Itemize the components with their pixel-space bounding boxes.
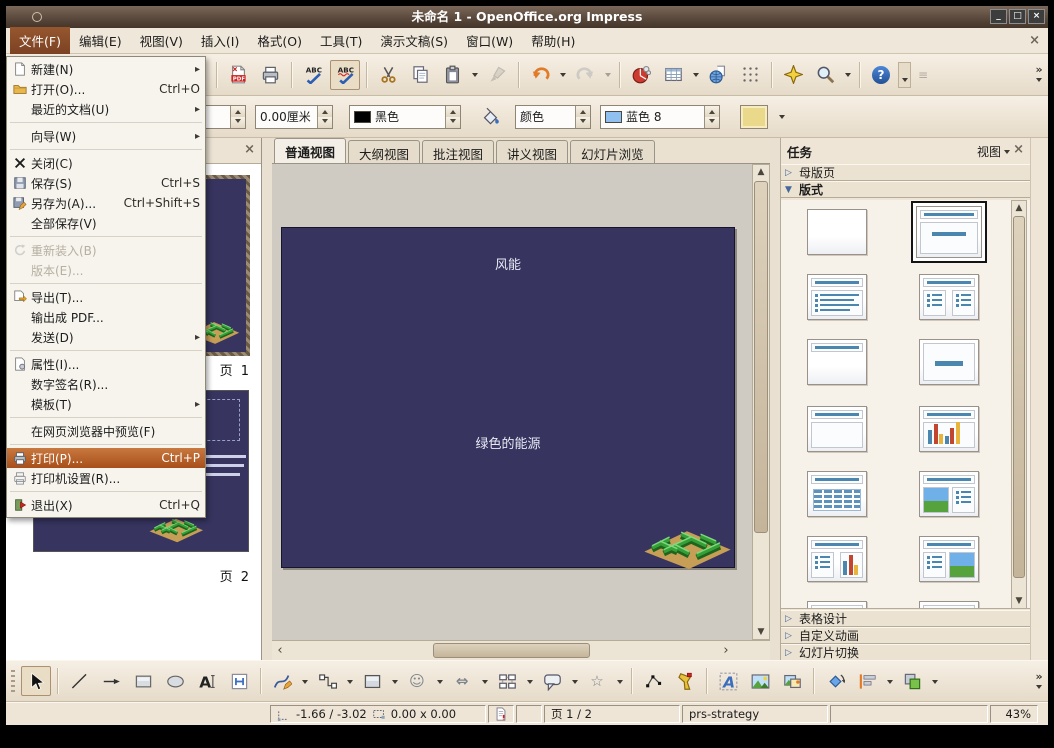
vertical-text-icon xyxy=(230,672,249,691)
help-icon: ? xyxy=(872,66,890,84)
app-window: 未命名 1 - OpenOffice.org Impress _ □ × 文件(… xyxy=(6,6,1048,725)
layout-title-text-chart[interactable] xyxy=(807,536,867,582)
smiley-icon: ☺ xyxy=(409,674,425,689)
menu-item-exit[interactable]: 退出(X)Ctrl+Q xyxy=(7,495,205,515)
menu-window[interactable]: 窗口(W) xyxy=(457,27,522,54)
section-custom-animation[interactable]: ▷ 自定义动画 xyxy=(781,627,1030,644)
print-button[interactable] xyxy=(255,60,285,90)
menu-item-printer-settings[interactable]: 打印机设置(R)... xyxy=(7,468,205,488)
status-template[interactable]: prs-strategy xyxy=(682,705,828,723)
star-icon: ☆ xyxy=(590,674,603,689)
toolbar2-options[interactable] xyxy=(776,103,787,131)
vertical-text-tool[interactable] xyxy=(224,666,254,696)
callout-icon xyxy=(543,672,562,691)
gallery-button[interactable] xyxy=(777,666,807,696)
insert-chart-button[interactable] xyxy=(626,60,656,90)
pdf-icon xyxy=(229,65,248,84)
layout-scrollbar[interactable]: ▲ ▼ xyxy=(1011,200,1027,609)
symbol-shapes-dropdown[interactable] xyxy=(434,667,445,695)
task-panel-close-icon[interactable]: × xyxy=(1013,143,1024,157)
document-modified-icon xyxy=(494,707,508,721)
layout-title-picture-text[interactable] xyxy=(919,471,979,517)
layout-title-chart[interactable] xyxy=(919,406,979,452)
arrow-line-icon xyxy=(102,672,121,691)
menu-item-open[interactable]: 打开(O)...Ctrl+O xyxy=(7,79,205,99)
drawbar-overflow-button[interactable]: » xyxy=(1030,666,1048,696)
maximize-button[interactable]: □ xyxy=(1009,9,1026,24)
format-paintbrush-button[interactable] xyxy=(482,60,512,90)
layout-title-content[interactable] xyxy=(807,274,867,320)
select-tool[interactable] xyxy=(21,666,51,696)
arrange-button[interactable] xyxy=(897,666,927,696)
line-width-field[interactable]: 0.00厘米 xyxy=(255,105,333,129)
fontwork-button[interactable] xyxy=(713,666,743,696)
line-width-spinner[interactable] xyxy=(317,106,332,128)
section-table-design[interactable]: ▷ 表格设计 xyxy=(781,610,1030,627)
callouts-dropdown[interactable] xyxy=(569,667,580,695)
menu-view[interactable]: 视图(V) xyxy=(131,27,192,54)
picture-icon xyxy=(751,672,770,691)
scroll-right-icon[interactable]: › xyxy=(718,643,734,658)
menu-insert[interactable]: 插入(I) xyxy=(192,27,248,54)
tab-handout-view[interactable]: 讲义视图 xyxy=(496,140,568,163)
layout-title-two-content[interactable] xyxy=(919,274,979,320)
horizontal-scrollbar[interactable]: ‹ › xyxy=(272,640,752,660)
undo-dropdown[interactable] xyxy=(557,61,568,89)
fill-style-spinner[interactable] xyxy=(575,106,590,128)
expanded-icon: ▼ xyxy=(785,185,795,195)
edit-points-button[interactable] xyxy=(638,666,668,696)
cut-button[interactable] xyxy=(373,60,403,90)
menu-slideshow[interactable]: 演示文稿(S) xyxy=(371,27,457,54)
fill-color-swatch xyxy=(605,111,622,123)
save-icon xyxy=(13,176,27,190)
grid-icon xyxy=(741,65,760,84)
curve-icon xyxy=(273,672,292,691)
curve-tool[interactable] xyxy=(267,666,297,696)
symbol-shapes-tool[interactable]: ☺ xyxy=(402,666,432,696)
exit-icon xyxy=(13,498,27,512)
panel-splitter-right[interactable] xyxy=(770,138,780,660)
basic-shapes-tool[interactable] xyxy=(357,666,387,696)
export-pdf-button[interactable] xyxy=(223,60,253,90)
redo-button[interactable] xyxy=(570,60,600,90)
fill-style-combo[interactable]: 颜色 xyxy=(515,105,591,129)
redo-icon xyxy=(576,65,595,84)
statusbar: -1.66 / -3.02 0.00 x 0.00 页 1 / 2 prs-st… xyxy=(6,702,1048,725)
menu-item-templates[interactable]: 模板(T)▸ xyxy=(7,394,205,414)
line-color-spinner[interactable] xyxy=(445,106,460,128)
menu-item-versions: 版本(E)... xyxy=(7,260,205,280)
hyperlink-icon xyxy=(709,65,728,84)
reload-icon xyxy=(13,243,27,257)
status-page: 页 1 / 2 xyxy=(544,705,680,723)
menu-item-new[interactable]: 新建(N)▸ xyxy=(7,59,205,79)
stars-tool[interactable]: ☆ xyxy=(582,666,612,696)
line-style-spinner[interactable] xyxy=(230,106,245,128)
block-arrow-icon: ⇔ xyxy=(456,674,469,689)
paste-dropdown[interactable] xyxy=(469,61,480,89)
help-button[interactable]: ? xyxy=(866,60,896,90)
view-tabs: 普通视图 大纲视图 批注视图 讲义视图 幻灯片浏览 xyxy=(272,138,770,164)
close-button[interactable]: × xyxy=(1028,9,1045,24)
vertical-scroll-thumb[interactable] xyxy=(754,181,768,533)
menu-item-close[interactable]: 关闭(C) xyxy=(7,153,205,173)
menu-item-digital-signatures[interactable]: 数字签名(R)... xyxy=(7,374,205,394)
block-arrows-tool[interactable]: ⇔ xyxy=(447,666,477,696)
scroll-down-icon[interactable]: ▼ xyxy=(1011,596,1027,606)
tab-slide-sorter[interactable]: 幻灯片浏览 xyxy=(570,140,655,163)
maze-graphic[interactable] xyxy=(638,507,736,569)
document-close-icon[interactable]: × xyxy=(1029,33,1040,48)
printer-icon xyxy=(261,65,280,84)
paintbrush-icon xyxy=(488,65,507,84)
rectangle-icon xyxy=(134,672,153,691)
autospellcheck-icon xyxy=(336,65,355,84)
spellcheck-icon xyxy=(304,65,323,84)
menu-file[interactable]: 文件(F) xyxy=(10,27,70,54)
section-layouts[interactable]: ▼ 版式 xyxy=(781,181,1030,198)
properties-icon xyxy=(13,357,27,371)
layout-scroll-thumb[interactable] xyxy=(1013,216,1025,578)
ellipse-tool[interactable] xyxy=(160,666,190,696)
rotate-icon xyxy=(826,672,845,691)
print-icon xyxy=(13,451,27,465)
menu-item-web-preview[interactable]: 在网页浏览器中预览(F) xyxy=(7,421,205,441)
flowchart-icon xyxy=(498,672,517,691)
slide-1-label: 页 1 xyxy=(220,360,251,379)
line-color-combo[interactable]: 黑色 xyxy=(349,105,461,129)
paste-button[interactable] xyxy=(437,60,467,90)
copy-button[interactable] xyxy=(405,60,435,90)
menu-item-properties[interactable]: 属性(I)... xyxy=(7,354,205,374)
zoom-button[interactable] xyxy=(810,60,840,90)
alignment-dropdown[interactable] xyxy=(884,667,895,695)
align-icon xyxy=(858,672,877,691)
status-empty xyxy=(830,705,988,723)
task-panel: 任务 视图 × ▷ 母版页 ▼ 版式 xyxy=(780,138,1030,660)
navigator-button[interactable] xyxy=(778,60,808,90)
basic-shapes-dropdown[interactable] xyxy=(389,667,400,695)
status-signature xyxy=(516,705,542,723)
collapsed-icon: ▷ xyxy=(785,614,795,624)
line-color-swatch xyxy=(354,111,371,123)
layout-centered-text[interactable] xyxy=(919,339,979,385)
save-as-icon xyxy=(13,196,27,210)
scroll-up-icon[interactable]: ▲ xyxy=(1011,203,1027,213)
undo-button[interactable] xyxy=(525,60,555,90)
undo-icon xyxy=(531,65,550,84)
slide-1[interactable]: 风能 绿色的能源 xyxy=(281,227,735,568)
text-icon xyxy=(198,672,217,691)
menu-item-wizards[interactable]: 向导(W)▸ xyxy=(7,126,205,146)
layout-clipped-1[interactable] xyxy=(807,601,867,609)
cursor-position: -1.66 / -3.02 xyxy=(296,707,367,721)
arrange-dropdown[interactable] xyxy=(929,667,940,695)
status-modified[interactable] xyxy=(488,705,514,723)
line-arrow-tool[interactable] xyxy=(96,666,126,696)
size-icon xyxy=(372,707,386,721)
layout-title-text-picture[interactable] xyxy=(919,536,979,582)
scrollbar-corner xyxy=(752,640,770,660)
insert-picture-button[interactable] xyxy=(745,666,775,696)
cursor-icon xyxy=(27,672,46,691)
file-menu: 新建(N)▸ 打开(O)...Ctrl+O 最近的文档(U)▸ 向导(W)▸ 关… xyxy=(6,56,206,518)
fill-color-combo[interactable]: 蓝色 8 xyxy=(600,105,720,129)
minimize-button[interactable]: _ xyxy=(990,9,1007,24)
new-document-icon xyxy=(13,62,27,76)
autospellcheck-button[interactable] xyxy=(330,60,360,90)
flowchart-tool[interactable] xyxy=(492,666,522,696)
tab-notes-view[interactable]: 批注视图 xyxy=(422,140,494,163)
menu-item-save[interactable]: 保存(S)Ctrl+S xyxy=(7,173,205,193)
vertical-scrollbar[interactable]: ▲ ▼ xyxy=(752,164,770,640)
ellipse-icon xyxy=(166,672,185,691)
glue-points-icon xyxy=(676,672,695,691)
menu-help[interactable]: 帮助(H) xyxy=(522,27,584,54)
slide-title-text[interactable]: 风能 xyxy=(282,254,734,273)
task-panel-title: 任务 xyxy=(787,142,812,161)
insert-table-button[interactable] xyxy=(658,60,688,90)
gallery-icon xyxy=(783,672,802,691)
layout-title-table[interactable] xyxy=(807,471,867,517)
menu-tools[interactable]: 工具(T) xyxy=(311,27,371,54)
zoom-dropdown[interactable] xyxy=(842,61,853,89)
scroll-left-icon[interactable]: ‹ xyxy=(272,643,288,658)
menu-item-export-pdf[interactable]: 输出成 PDF... xyxy=(7,307,205,327)
scissors-icon xyxy=(379,65,398,84)
menu-item-recent-documents[interactable]: 最近的文档(U)▸ xyxy=(7,99,205,119)
fontwork-icon xyxy=(719,672,738,691)
paste-icon xyxy=(443,65,462,84)
layout-clipped-2[interactable] xyxy=(919,601,979,609)
magnifier-icon xyxy=(816,65,835,84)
chart-icon xyxy=(632,65,651,84)
callouts-tool[interactable] xyxy=(537,666,567,696)
open-folder-icon xyxy=(13,82,27,96)
rectangle-tool[interactable] xyxy=(128,666,158,696)
display-grid-button[interactable] xyxy=(735,60,765,90)
rotate-button[interactable] xyxy=(820,666,850,696)
titlebar[interactable]: 未命名 1 - OpenOffice.org Impress _ □ × xyxy=(6,6,1048,28)
navigator-star-icon xyxy=(784,65,803,84)
collapsed-icon: ▷ xyxy=(785,168,795,178)
right-edge-strip xyxy=(1030,138,1048,660)
horizontal-scroll-thumb[interactable] xyxy=(433,643,590,658)
scroll-up-icon[interactable]: ▲ xyxy=(753,167,769,177)
line-tool[interactable] xyxy=(64,666,94,696)
slide-subtitle-text[interactable]: 绿色的能源 xyxy=(282,433,734,452)
export-icon xyxy=(13,290,27,304)
section-slide-transition[interactable]: ▷ 幻灯片切换 xyxy=(781,644,1030,661)
slide-canvas[interactable]: 风能 绿色的能源 xyxy=(272,164,752,640)
layout-title-subtitle-selected[interactable] xyxy=(911,201,987,263)
shadow-button[interactable] xyxy=(740,105,768,129)
menu-item-save-all[interactable]: 全部保存(V) xyxy=(7,213,205,233)
connector-tool[interactable] xyxy=(312,666,342,696)
task-panel-header: 任务 视图 × xyxy=(781,138,1030,164)
drawing-toolbar: ☺ ⇔ ☆ » xyxy=(6,660,1048,702)
layout-gallery xyxy=(781,200,1030,609)
menu-edit[interactable]: 编辑(E) xyxy=(70,27,131,54)
stars-dropdown[interactable] xyxy=(614,667,625,695)
status-zoom[interactable]: 43% xyxy=(990,705,1038,723)
position-icon xyxy=(277,707,291,721)
menu-item-send[interactable]: 发送(D)▸ xyxy=(7,327,205,347)
table-dropdown[interactable] xyxy=(690,61,701,89)
fill-color-spinner[interactable] xyxy=(704,106,719,128)
area-style-button[interactable] xyxy=(475,102,505,132)
connector-dropdown[interactable] xyxy=(344,667,355,695)
collapsed-icon: ▷ xyxy=(785,631,795,641)
menubar: 文件(F) 编辑(E) 视图(V) 插入(I) 格式(O) 工具(T) 演示文稿… xyxy=(6,28,1048,54)
copy-icon xyxy=(411,65,430,84)
basic-shape-icon xyxy=(363,672,382,691)
slide-panel-close-icon[interactable]: × xyxy=(244,143,255,157)
object-size: 0.00 x 0.00 xyxy=(391,707,456,721)
alignment-button[interactable] xyxy=(852,666,882,696)
flowchart-dropdown[interactable] xyxy=(524,667,535,695)
edit-points-icon xyxy=(644,672,663,691)
text-tool[interactable] xyxy=(192,666,222,696)
status-position-size: -1.66 / -3.02 0.00 x 0.00 xyxy=(270,705,486,723)
scroll-down-icon[interactable]: ▼ xyxy=(753,627,769,637)
slide-2-label: 页 2 xyxy=(220,566,251,585)
hyperlink-button[interactable] xyxy=(703,60,733,90)
section-master-pages[interactable]: ▷ 母版页 xyxy=(781,164,1030,181)
toolbar-overflow-button[interactable]: » xyxy=(1030,60,1048,90)
toolbar-options[interactable] xyxy=(898,62,911,88)
layout-title-only[interactable] xyxy=(807,339,867,385)
printer-settings-icon xyxy=(13,471,27,485)
workspace: 普通视图 大纲视图 批注视图 讲义视图 幻灯片浏览 风能 绿色的能源 ▲ ▼ ‹… xyxy=(272,138,770,660)
lines-icon: ≡ xyxy=(918,69,928,81)
arrange-icon xyxy=(903,672,922,691)
menu-item-print[interactable]: 打印(P)...Ctrl+P xyxy=(7,448,205,468)
toolbar-grip[interactable] xyxy=(11,670,15,692)
redo-dropdown[interactable] xyxy=(602,61,613,89)
collapsed-icon: ▷ xyxy=(785,648,795,658)
menu-item-export[interactable]: 导出(T)... xyxy=(7,287,205,307)
panel-splitter-left[interactable] xyxy=(262,138,272,660)
app-icon xyxy=(32,12,42,22)
table-icon xyxy=(664,65,683,84)
window-title: 未命名 1 - OpenOffice.org Impress xyxy=(412,9,643,24)
spellcheck-button[interactable] xyxy=(298,60,328,90)
visible-buttons-button[interactable]: ≡ xyxy=(913,60,933,90)
tab-normal-view[interactable]: 普通视图 xyxy=(274,138,346,163)
layout-title-empty-content[interactable] xyxy=(807,406,867,452)
menu-format[interactable]: 格式(O) xyxy=(248,27,311,54)
connector-icon xyxy=(318,672,337,691)
close-x-icon xyxy=(13,156,27,170)
menu-item-save-as[interactable]: 另存为(A)...Ctrl+Shift+S xyxy=(7,193,205,213)
curve-dropdown[interactable] xyxy=(299,667,310,695)
paint-can-icon xyxy=(481,107,500,126)
glue-points-button[interactable] xyxy=(670,666,700,696)
menu-item-reload: 重新装入(B) xyxy=(7,240,205,260)
block-arrows-dropdown[interactable] xyxy=(479,667,490,695)
tab-outline-view[interactable]: 大纲视图 xyxy=(348,140,420,163)
line-icon xyxy=(70,672,89,691)
layout-blank[interactable] xyxy=(807,209,867,255)
